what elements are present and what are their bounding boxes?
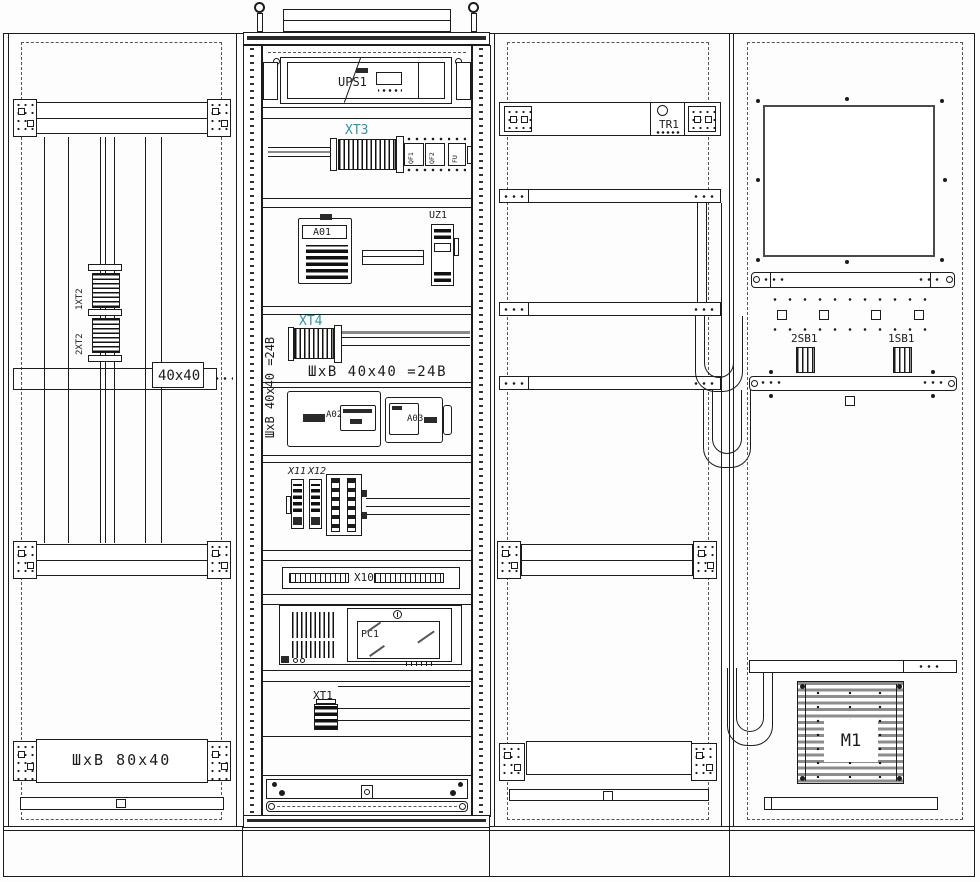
screw-icon <box>450 790 456 796</box>
panel1-left-edge <box>8 33 9 826</box>
cabinet-frame-right-holes <box>479 48 483 814</box>
panel4-left-edge <box>733 33 734 826</box>
door-square-hole <box>845 396 855 406</box>
connector-block-pin-column <box>347 478 356 532</box>
panel1-top-bracket-left <box>13 99 37 137</box>
rail-holes <box>763 277 785 282</box>
relay-a01-tab <box>320 214 332 220</box>
cabinet-bottom-band-fill <box>247 819 486 822</box>
wiring-line <box>366 506 470 507</box>
screw-icon <box>458 782 463 787</box>
rail-end-holes <box>504 307 524 312</box>
fan-frame-line <box>896 684 897 781</box>
bracket-hole <box>504 752 511 759</box>
xt1-rail-line <box>338 708 470 709</box>
ups1-buttons <box>378 88 402 93</box>
panel4-bottom-strip <box>764 797 938 810</box>
duct-size-label: 40x40 <box>158 369 200 383</box>
cabinet-top-band-fill <box>247 36 486 40</box>
screw-icon <box>897 684 902 689</box>
panel1-duct-bracket-right <box>207 741 231 781</box>
xt2-flange <box>88 264 122 271</box>
panel1-vertical-rail <box>44 137 45 543</box>
panel1-top-bracket-right <box>207 99 231 137</box>
pushbutton-1sb1 <box>893 347 912 373</box>
rail-end-hole <box>948 380 955 387</box>
computer-pc1-label: PC1 <box>361 630 379 640</box>
strip-end-hole <box>459 803 466 810</box>
screw-icon <box>272 782 277 787</box>
tr1-lamp-icon <box>657 105 668 116</box>
xt4-label: XT4 <box>299 315 322 328</box>
screw-icon <box>845 97 849 101</box>
screw-icon <box>756 99 760 103</box>
panel3-rail-bracket-left <box>504 106 532 132</box>
shelf-band <box>262 107 472 119</box>
bracket-hole <box>27 120 34 127</box>
din-rail-line <box>362 256 424 257</box>
rail-holes <box>760 380 782 385</box>
bracket-hole <box>514 764 521 771</box>
panel1-middle-rail-dots <box>217 376 233 381</box>
bracket-hole <box>694 116 701 123</box>
pc1-window-glass <box>357 621 440 659</box>
breaker-terminals-top <box>448 136 466 142</box>
door-square-hole <box>777 310 787 320</box>
button-2sb1-label: 2SB1 <box>791 333 818 344</box>
pc1-badge <box>281 656 289 663</box>
panel3-strip-center-tab <box>603 791 613 801</box>
screw-icon <box>940 99 944 103</box>
screw-icon <box>279 790 285 796</box>
cabinet-frame-left-holes <box>250 48 254 814</box>
ups1-face-divider <box>418 62 419 99</box>
plinth-divider <box>242 826 243 877</box>
tr1-divider <box>650 102 651 136</box>
screw-icon <box>800 776 805 781</box>
rail-divider <box>528 376 529 390</box>
bracket-hole <box>18 550 25 557</box>
panel3-rail <box>499 376 721 390</box>
cable-duct-line <box>697 203 698 302</box>
rail-holes <box>918 277 940 282</box>
xt4-terminal-block <box>294 328 334 359</box>
breaker-end-flange <box>467 146 472 164</box>
xt3-terminal-block <box>338 139 396 170</box>
rail-end-holes <box>504 194 524 199</box>
rail-holes <box>922 380 944 385</box>
panel3-rail <box>499 189 721 203</box>
screw-icon <box>931 394 935 398</box>
fan-frame-line <box>805 684 806 781</box>
ups1-logo <box>356 68 368 73</box>
rail-holes <box>916 664 942 669</box>
xt2-flange <box>88 355 122 362</box>
ups-ear-right <box>456 62 471 100</box>
panel3-bottom-bracket-right <box>693 541 717 579</box>
terminal-block-2xt2 <box>92 318 120 353</box>
ups-ear-left <box>263 62 278 100</box>
strip-divider <box>771 797 772 810</box>
panel1-top-rail-line <box>36 118 208 119</box>
cabinet-bottom-void <box>262 736 472 776</box>
tr1-divider <box>684 102 685 136</box>
wiring-line <box>366 498 470 499</box>
duct-label-vertical: ШхВ 40х40 =24В <box>264 298 280 438</box>
psu-uz1-bottom-terminals <box>434 270 451 282</box>
bracket-hole <box>221 120 228 127</box>
ups1-display <box>376 72 402 85</box>
panel3-bottom-rail-line <box>521 560 693 561</box>
module-a03-label: A03 <box>407 415 423 424</box>
pc1-vent-slots <box>292 612 334 638</box>
module-a03-connector <box>424 417 437 423</box>
cabinet-top-plate-line <box>283 20 451 21</box>
panel1-centerline-border <box>21 42 222 820</box>
bracket-hole <box>212 550 219 557</box>
module-a03-end-cap <box>443 405 452 435</box>
bracket-hole <box>511 562 518 569</box>
xt4-din-rail <box>342 331 470 334</box>
relay-a01-keypad <box>306 245 348 279</box>
panel1-bottom-bracket-left <box>13 541 37 579</box>
tab-hole <box>364 789 370 795</box>
xt3-label: XT3 <box>345 124 368 137</box>
psu-uz1-top-terminals <box>434 227 451 239</box>
bracket-hole <box>27 562 34 569</box>
cabinet-layout-drawing: 1XT2 2XT2 40x40 ШхВ 80х40 <box>0 0 980 882</box>
rail-end-hole <box>946 276 953 283</box>
bracket-hole <box>502 550 509 557</box>
breaker-terminals-top <box>404 136 446 142</box>
button-1sb1-label: 1SB1 <box>888 333 915 344</box>
transformer-tr1-label: TR1 <box>659 119 679 130</box>
interpanel-cable-line <box>721 203 722 826</box>
shelf-band <box>262 306 472 315</box>
eyebolt-stem <box>471 13 477 32</box>
bracket-hole <box>705 116 712 123</box>
shelf-band <box>262 550 472 561</box>
connector-x11-pins <box>293 484 302 512</box>
breaker-qf2-label: QF2 <box>429 145 439 164</box>
x10-terminals-left <box>289 573 349 583</box>
bracket-hole <box>221 763 228 770</box>
breaker-qf1-label: QF1 <box>408 145 418 164</box>
bottom-duct-label: ШхВ 80х40 <box>72 753 171 768</box>
xt4-flange <box>334 325 342 363</box>
xt1-rail-line <box>338 720 470 721</box>
cable-loop-inner <box>704 316 734 378</box>
xt1-terminal-block <box>314 704 338 730</box>
xt1-rail-line <box>338 686 470 687</box>
xt4-rail-line <box>342 345 470 346</box>
connector-x12-label: X12 <box>308 467 326 477</box>
screw-icon <box>845 260 849 264</box>
rail-end-hole <box>753 276 760 283</box>
connector-block-latch <box>362 490 367 497</box>
door-hole-row <box>764 297 936 302</box>
bracket-hole <box>18 751 25 758</box>
xt3-din-rail <box>268 156 332 157</box>
rail-divider <box>770 272 771 288</box>
terminal-block-1xt2 <box>92 273 120 308</box>
duct-label-horizontal: ШхВ 40х40 =24В <box>308 365 447 379</box>
panel3-rail <box>499 302 721 316</box>
power-button-bar <box>397 612 398 617</box>
xt3-din-rail <box>268 151 332 153</box>
connector-block-pin-column <box>331 478 340 532</box>
cable-loop-inner <box>712 390 742 454</box>
pc1-screw <box>300 658 305 663</box>
pc1-serial-text <box>406 661 434 666</box>
panel1-vertical-rail <box>145 137 146 543</box>
rail-end-hole <box>751 380 758 387</box>
panel1-duct-bracket-left <box>13 741 37 781</box>
shelf-band <box>262 594 472 605</box>
bracket-hole <box>27 763 34 770</box>
rail-end-holes <box>694 307 714 312</box>
fan-m1-label: M1 <box>841 731 861 751</box>
bracket-hole <box>698 550 705 557</box>
module-a03-display-mark <box>392 406 402 410</box>
rail-end-holes <box>504 381 524 386</box>
screw-icon <box>769 370 773 374</box>
breaker-terminals-bottom <box>404 167 446 173</box>
screw-icon <box>769 394 773 398</box>
bracket-hole <box>707 562 714 569</box>
plinth-divider <box>489 826 490 877</box>
panel1-strip-center-tab <box>116 799 126 808</box>
pc1-vent-slots <box>292 641 334 658</box>
terminal-2xt2-label: 2XT2 <box>76 313 88 355</box>
xt2-flange <box>88 309 122 316</box>
connector-x12-foot <box>311 517 320 525</box>
xt4-rail-line <box>342 337 470 338</box>
relay-a01-label: A01 <box>313 228 331 238</box>
connector-flange <box>286 496 291 514</box>
panel1-right-edge <box>236 33 237 826</box>
fuse-fu-label: FU <box>452 146 462 163</box>
eyebolt-icon <box>254 2 265 13</box>
bracket-hole <box>221 562 228 569</box>
panel1-vertical-rail <box>68 137 69 543</box>
screw-icon <box>931 370 935 374</box>
fan-m1-center: M1 <box>824 720 878 762</box>
screw-icon <box>756 258 760 262</box>
screw-icon <box>756 178 760 182</box>
screw-icon <box>940 258 944 262</box>
connector-x12-pins <box>311 484 320 512</box>
door-square-hole <box>914 310 924 320</box>
bracket-hole <box>521 116 528 123</box>
breaker-terminals-bottom <box>448 167 466 173</box>
bracket-hole <box>510 116 517 123</box>
bracket-hole <box>706 764 713 771</box>
bottom-strip-centerline <box>272 806 462 807</box>
ups1-label: UPS1 <box>338 76 367 88</box>
tr1-terminal-dots <box>655 130 681 135</box>
module-a02-display-arrow <box>350 419 362 424</box>
bracket-hole <box>696 752 703 759</box>
screw-icon <box>897 776 902 781</box>
rail-divider <box>930 272 931 288</box>
x10-terminals-right <box>374 573 444 583</box>
shelf-band <box>262 455 472 463</box>
rail-divider <box>903 660 904 673</box>
panel1-bottom-bracket-right <box>207 541 231 579</box>
rail-divider <box>528 302 529 316</box>
panel3-bottom-bracket-left <box>497 541 521 579</box>
eyebolt-icon <box>468 2 479 13</box>
door-square-hole <box>871 310 881 320</box>
plinth-divider <box>729 826 730 877</box>
screw-icon <box>800 684 805 689</box>
panel1-vertical-rail <box>161 137 162 543</box>
bracket-hole <box>212 751 219 758</box>
xt3-flange <box>330 138 337 171</box>
fan-rivet-column <box>816 686 820 778</box>
panel3-centerline-border <box>507 42 709 820</box>
psu-uz1-side-tab <box>454 238 459 256</box>
interior-centerline <box>268 52 466 53</box>
shelf-band <box>262 198 472 208</box>
eyebolt-stem <box>257 13 263 32</box>
fan-rivet-column <box>878 686 882 778</box>
bracket-hole <box>18 108 25 115</box>
terminal-strip-x10-label: X10 <box>354 572 374 583</box>
panel3-duct-bracket-left <box>499 743 525 781</box>
shelf-band <box>262 382 472 388</box>
rail-divider <box>528 189 529 203</box>
cable-duct-line <box>706 203 707 302</box>
panel3-duct-bracket-right <box>691 743 717 781</box>
module-a02-display-text <box>343 409 372 413</box>
pc1-screw <box>293 658 298 663</box>
xt3-din-rail <box>268 147 332 148</box>
xt3-flange <box>396 136 404 173</box>
module-a02-connector <box>303 414 325 422</box>
panel1-bottom-rail-line <box>36 560 208 561</box>
panel3-left-edge <box>494 33 495 826</box>
strip-end-hole <box>268 803 275 810</box>
panel3-rail-bracket-right <box>688 106 716 132</box>
psu-uz1-display <box>434 243 451 252</box>
bracket-hole <box>212 108 219 115</box>
door-square-hole <box>819 310 829 320</box>
din-rail <box>362 250 424 265</box>
screw-icon <box>943 178 947 182</box>
connector-x11-label: X11 <box>288 467 306 477</box>
rail-end-holes <box>694 194 714 199</box>
psu-uz1-label: UZ1 <box>429 211 447 221</box>
shelf-band <box>262 670 472 682</box>
panel3-bottom-duct <box>526 741 692 775</box>
terminal-1xt2-label: 1XT2 <box>76 268 88 310</box>
door-window-cutout <box>763 105 935 257</box>
pushbutton-2sb1 <box>796 347 815 373</box>
wiring-line <box>366 514 470 515</box>
connector-x11-foot <box>293 517 302 525</box>
